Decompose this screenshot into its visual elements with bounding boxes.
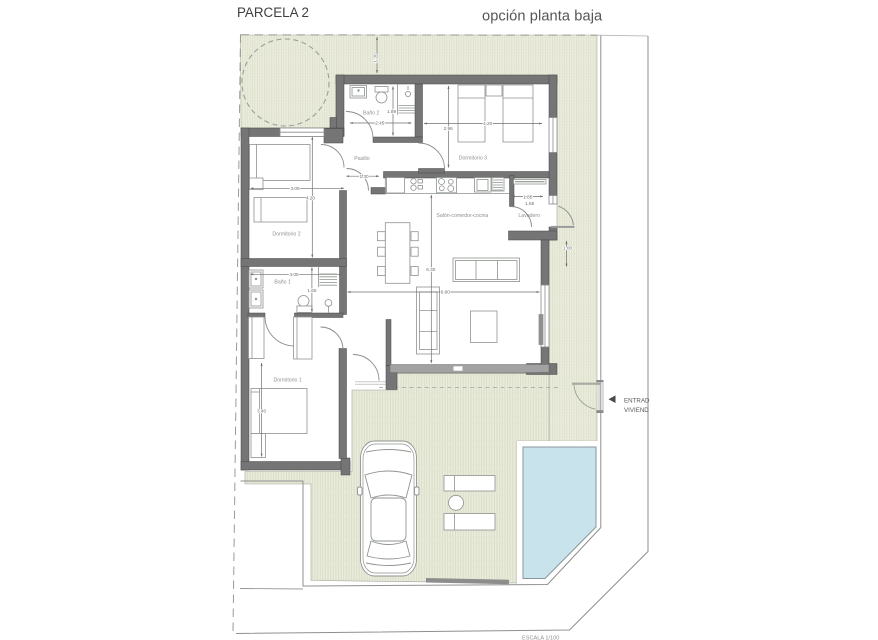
svg-text:2.45: 2.45 <box>375 121 385 126</box>
svg-text:4.20: 4.20 <box>306 195 316 200</box>
svg-text:1.85: 1.85 <box>523 195 533 200</box>
svg-text:3.40: 3.40 <box>257 408 267 413</box>
svg-text:6.60: 6.60 <box>441 290 451 295</box>
svg-text:Pasillo: Pasillo <box>354 156 369 162</box>
svg-text:ENTRAD: ENTRAD <box>624 398 650 405</box>
svg-text:1.00: 1.00 <box>563 246 573 251</box>
svg-text:Dormitorio 1: Dormitorio 1 <box>274 377 302 383</box>
svg-text:VIVIEND: VIVIEND <box>624 407 649 414</box>
svg-text:Dormitorio 3: Dormitorio 3 <box>459 156 487 162</box>
svg-text:3.05: 3.05 <box>289 272 299 277</box>
svg-text:6.30: 6.30 <box>426 267 436 272</box>
svg-text:Salón-comedor-cocina: Salón-comedor-cocina <box>436 213 488 219</box>
svg-text:Dormitorio 2: Dormitorio 2 <box>272 232 300 238</box>
svg-text:opción planta baja: opción planta baja <box>482 9 603 25</box>
svg-text:1.89: 1.89 <box>387 109 397 114</box>
svg-text:1.65: 1.65 <box>525 201 535 206</box>
svg-text:2.96: 2.96 <box>444 126 454 131</box>
svg-text:1.65: 1.65 <box>307 288 317 293</box>
svg-text:PARCELA 2: PARCELA 2 <box>237 5 309 20</box>
svg-text:1.30: 1.30 <box>359 174 369 179</box>
svg-text:Baño 2: Baño 2 <box>363 111 380 117</box>
svg-text:3.05: 3.05 <box>290 186 300 191</box>
svg-text:Baño 1: Baño 1 <box>274 279 291 285</box>
svg-text:Lavadero: Lavadero <box>518 213 540 219</box>
svg-text:4.20: 4.20 <box>483 121 493 126</box>
svg-text:ESCALA 1/100: ESCALA 1/100 <box>522 636 559 640</box>
svg-text:1.30: 1.30 <box>373 53 378 63</box>
